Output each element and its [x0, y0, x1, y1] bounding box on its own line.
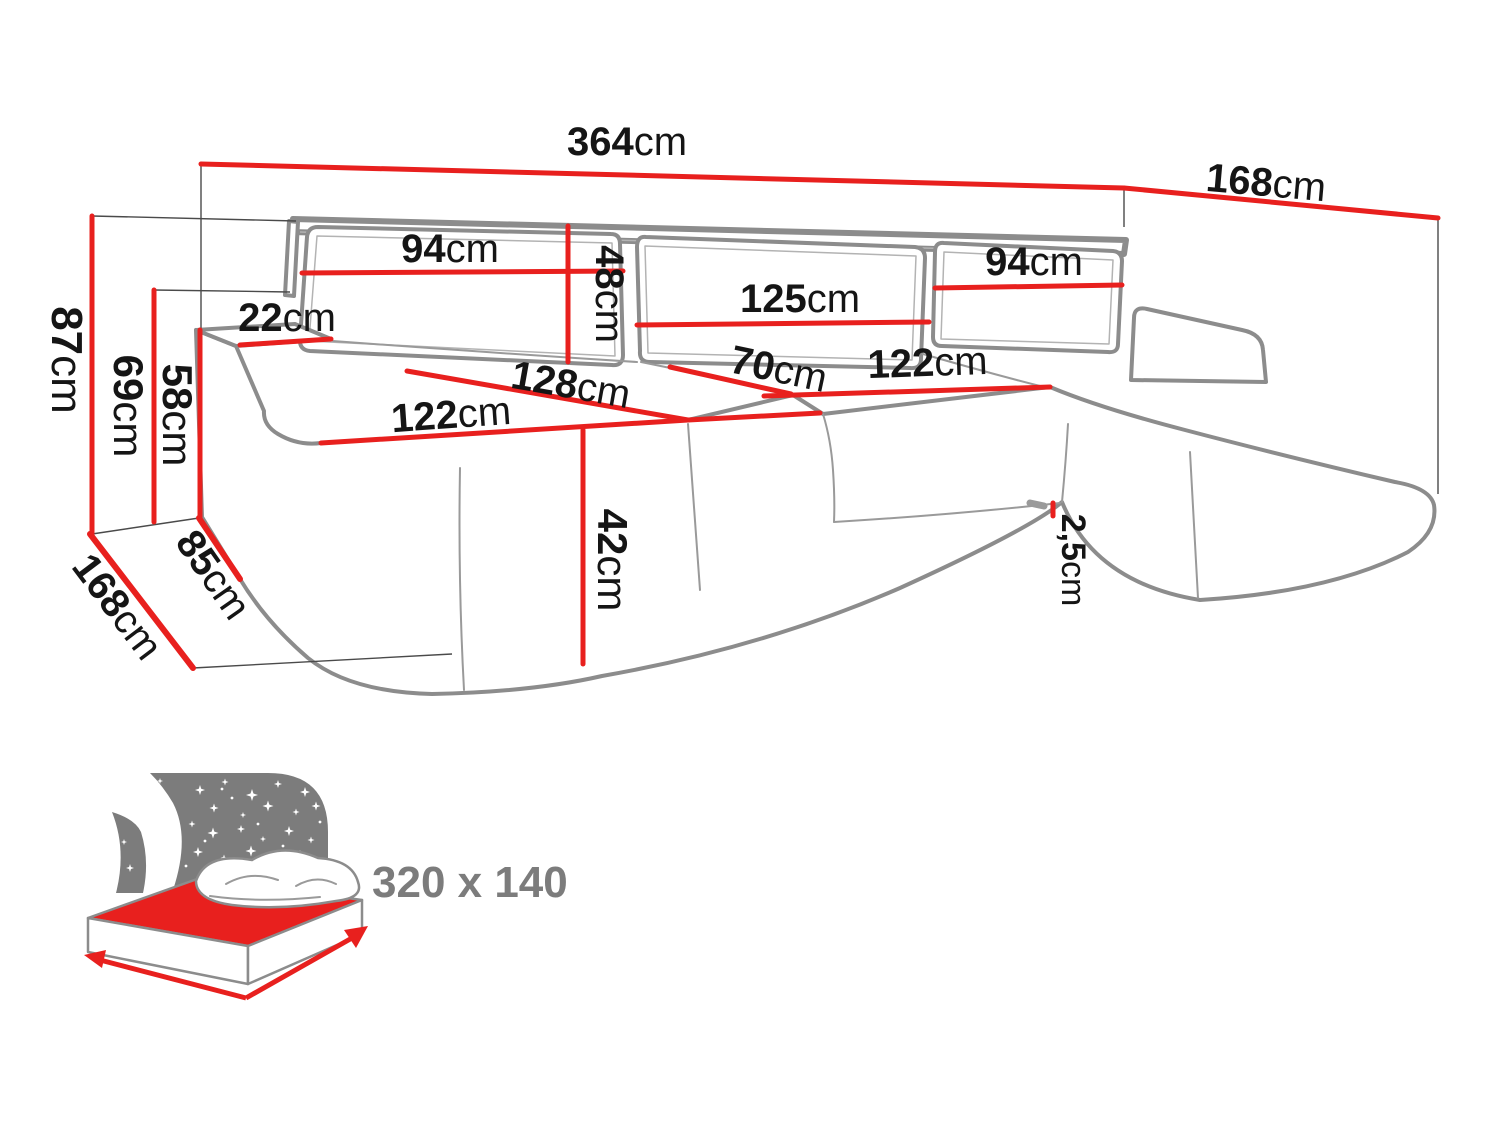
dim-label-middle-seat-width: 122cm	[867, 339, 989, 387]
dim-line-total-width	[201, 164, 1124, 188]
sofa-right-arm	[1131, 308, 1266, 382]
sleeping-function-icon: 320 x 140	[84, 773, 568, 998]
dim-label-backrest-height: 69cm	[105, 355, 152, 458]
dim-line-back-cushion-left	[302, 271, 623, 273]
sofa-dimensions-diagram: 364cm 168cm 94cm 48cm 125cm 94cm 22cm 87…	[0, 0, 1500, 1125]
dim-label-back-cushion-right: 94cm	[985, 240, 1083, 284]
dim-label-left-side-depth: 168cm	[63, 546, 170, 668]
dim-label-total-height: 87cm	[42, 306, 91, 414]
dim-label-leg-height: 2,5cm	[1054, 514, 1092, 607]
dim-label-back-cushion-height: 48cm	[587, 245, 631, 343]
dim-label-chaise-seat-width: 122cm	[390, 389, 513, 441]
dim-line-back-cushion-right	[935, 285, 1122, 288]
dim-label-back-cushion-left: 94cm	[401, 227, 499, 271]
dim-label-back-cushion-middle: 125cm	[740, 277, 860, 321]
dim-label-total-width: 364cm	[567, 120, 687, 164]
helper-bottom-left	[92, 518, 199, 534]
dim-label-armrest-height: 58cm	[154, 364, 201, 467]
helper-backrest	[154, 290, 290, 292]
helper-top-left	[92, 216, 296, 221]
dim-label-armrest-top-width: 22cm	[238, 296, 336, 340]
dim-label-seat-height: 42cm	[589, 509, 636, 612]
dim-label-right-side-depth: 168cm	[1204, 156, 1327, 210]
dim-line-back-cushion-middle	[637, 322, 929, 325]
bed-size-label: 320 x 140	[372, 858, 568, 907]
sofa-leg	[1030, 503, 1044, 506]
